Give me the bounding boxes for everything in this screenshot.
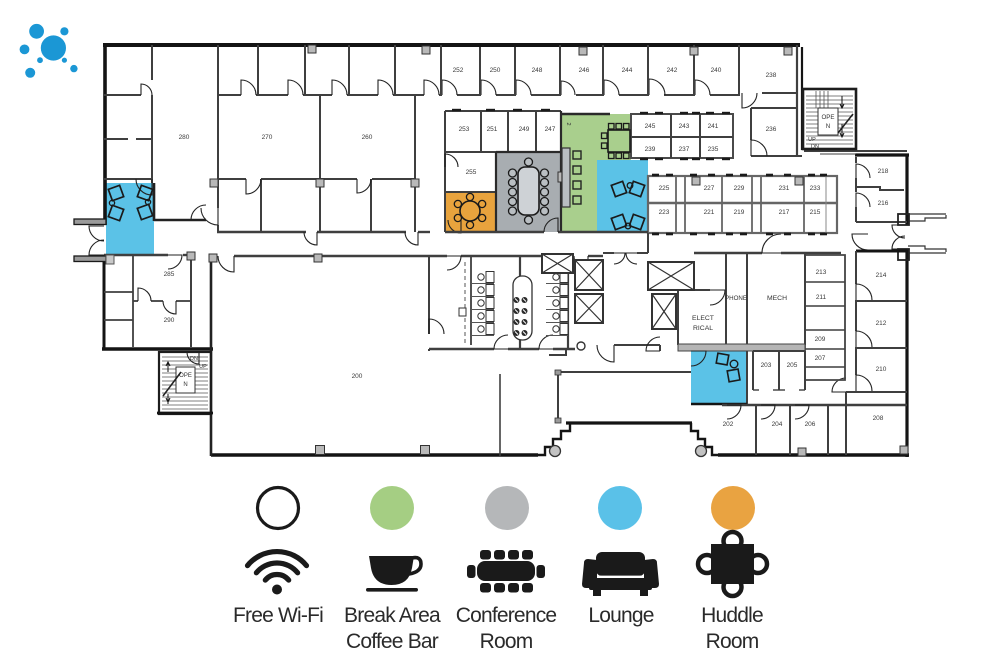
svg-text:285: 285 xyxy=(164,271,175,278)
svg-text:DN: DN xyxy=(811,144,819,150)
svg-text:N: N xyxy=(183,382,187,388)
svg-text:209: 209 xyxy=(815,336,826,343)
svg-text:280: 280 xyxy=(179,134,190,141)
svg-text:249: 249 xyxy=(519,126,530,133)
svg-text:UP: UP xyxy=(808,137,816,143)
svg-text:231: 231 xyxy=(779,185,790,192)
svg-text:236: 236 xyxy=(766,126,777,133)
svg-text:238: 238 xyxy=(766,72,777,79)
svg-text:Conference: Conference xyxy=(456,604,557,627)
svg-text:RICAL: RICAL xyxy=(693,325,713,332)
svg-text:250: 250 xyxy=(490,67,501,74)
svg-text:240: 240 xyxy=(711,67,722,74)
svg-text:N: N xyxy=(826,123,830,130)
svg-text:207: 207 xyxy=(815,355,826,362)
svg-text:MECH: MECH xyxy=(767,295,787,302)
svg-text:223: 223 xyxy=(659,209,670,216)
svg-text:Room: Room xyxy=(480,630,533,653)
svg-text:225: 225 xyxy=(659,185,670,192)
svg-text:Free Wi-Fi: Free Wi-Fi xyxy=(233,604,323,627)
svg-text:206: 206 xyxy=(805,421,816,428)
svg-text:290: 290 xyxy=(164,317,175,324)
svg-text:229: 229 xyxy=(734,185,745,192)
svg-text:Coffee Bar: Coffee Bar xyxy=(346,630,439,653)
svg-text:217: 217 xyxy=(779,209,790,216)
svg-text:Lounge: Lounge xyxy=(588,604,653,627)
svg-text:245: 245 xyxy=(645,123,656,130)
svg-text:216: 216 xyxy=(878,200,889,207)
svg-text:OPE: OPE xyxy=(179,373,192,379)
svg-text:204: 204 xyxy=(772,421,783,428)
svg-text:237: 237 xyxy=(679,146,690,153)
svg-text:248: 248 xyxy=(532,67,543,74)
svg-text:244: 244 xyxy=(622,67,633,74)
svg-text:OPE: OPE xyxy=(821,114,834,121)
svg-text:235: 235 xyxy=(708,146,719,153)
svg-text:233: 233 xyxy=(810,185,821,192)
svg-text:260: 260 xyxy=(362,134,373,141)
svg-text:210: 210 xyxy=(876,366,887,373)
svg-text:202: 202 xyxy=(723,421,734,428)
svg-text:UP: UP xyxy=(199,364,207,370)
svg-text:ELECT: ELECT xyxy=(692,315,714,322)
svg-text:219: 219 xyxy=(734,209,745,216)
svg-text:243: 243 xyxy=(679,123,690,130)
svg-text:Room: Room xyxy=(706,630,759,653)
svg-text:211: 211 xyxy=(816,294,827,301)
svg-text:270: 270 xyxy=(262,134,273,141)
svg-text:241: 241 xyxy=(708,123,719,130)
svg-text:208: 208 xyxy=(873,415,884,422)
svg-text:227: 227 xyxy=(704,185,715,192)
svg-text:214: 214 xyxy=(876,272,887,279)
svg-text:Break Area: Break Area xyxy=(344,604,441,627)
svg-text:221: 221 xyxy=(704,209,715,216)
svg-text:200: 200 xyxy=(352,373,363,380)
svg-text:247: 247 xyxy=(545,126,556,133)
svg-text:212: 212 xyxy=(876,320,887,327)
svg-text:PHONE: PHONE xyxy=(725,295,747,302)
svg-text:239: 239 xyxy=(645,146,656,153)
svg-text:203: 203 xyxy=(761,362,772,369)
svg-text:215: 215 xyxy=(810,209,821,216)
svg-text:252: 252 xyxy=(453,67,464,74)
svg-text:205: 205 xyxy=(787,362,798,369)
svg-text:Huddle: Huddle xyxy=(701,604,763,627)
svg-text:251: 251 xyxy=(487,126,498,133)
svg-text:213: 213 xyxy=(816,269,827,276)
svg-text:2: 2 xyxy=(565,122,571,125)
svg-text:246: 246 xyxy=(579,67,590,74)
svg-text:242: 242 xyxy=(667,67,678,74)
svg-text:253: 253 xyxy=(459,126,470,133)
svg-text:218: 218 xyxy=(878,168,889,175)
svg-text:255: 255 xyxy=(466,169,477,176)
